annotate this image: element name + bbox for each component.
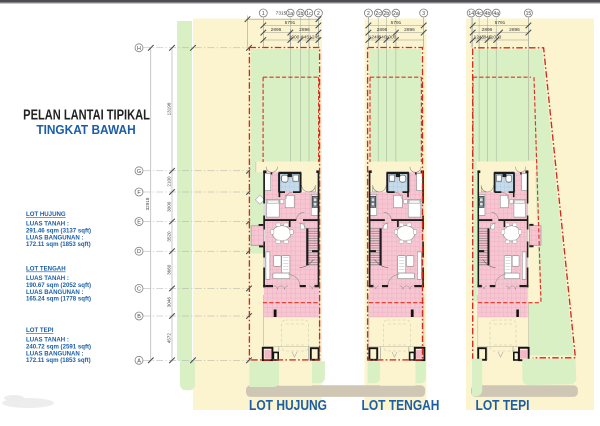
svg-text:1245: 1245 (309, 34, 320, 40)
svg-text:2896: 2896 (404, 27, 415, 33)
svg-text:C: C (137, 286, 141, 292)
svg-text:14: 14 (468, 11, 474, 17)
svg-text:3660: 3660 (166, 264, 171, 275)
svg-text:1b: 1b (298, 11, 304, 17)
svg-text:2b: 2b (384, 11, 390, 17)
svg-text:5791: 5791 (285, 20, 296, 26)
svg-text:LOT HUJUNG: LOT HUJUNG (249, 397, 327, 414)
svg-text:E: E (137, 220, 141, 226)
svg-text:2896: 2896 (271, 27, 282, 33)
svg-text:3520: 3520 (166, 231, 171, 242)
svg-text:2a: 2a (393, 11, 399, 17)
svg-text:2896: 2896 (377, 27, 388, 33)
svg-text:PELAN LANTAI TIPIKAL: PELAN LANTAI TIPIKAL (23, 106, 150, 123)
svg-text:4572: 4572 (166, 333, 171, 344)
svg-text:H: H (137, 46, 141, 52)
svg-text:1000: 1000 (289, 34, 300, 40)
svg-text:2: 2 (317, 11, 320, 17)
svg-text:LOT TENGAH: LOT TENGAH (362, 397, 440, 414)
svg-text:2: 2 (367, 11, 370, 17)
svg-text:2896: 2896 (299, 27, 310, 33)
svg-text:LOT TEPI: LOT TEPI (476, 397, 530, 414)
svg-text:TINGKAT BAWAH: TINGKAT BAWAH (36, 122, 135, 137)
svg-text:3046: 3046 (166, 297, 171, 308)
svg-text:1: 1 (262, 11, 265, 17)
svg-text:13198: 13198 (166, 102, 171, 115)
svg-text:4b: 4b (485, 11, 491, 17)
svg-text:1000: 1000 (491, 34, 502, 40)
svg-text:LOT TEPI: LOT TEPI (26, 327, 54, 334)
svg-text:1000: 1000 (386, 34, 397, 40)
svg-text:2100: 2100 (166, 176, 171, 187)
svg-text:G: G (137, 169, 141, 175)
svg-text:2c: 2c (376, 11, 382, 17)
svg-text:2896: 2896 (482, 27, 493, 33)
svg-text:4c: 4c (476, 11, 482, 17)
svg-text:LOT HUJUNG: LOT HUJUNG (26, 211, 66, 218)
svg-text:845: 845 (301, 34, 309, 40)
svg-text:172.11 sqm (1853 sqft): 172.11 sqm (1853 sqft) (26, 357, 91, 364)
svg-text:1a: 1a (287, 11, 293, 17)
svg-text:2896: 2896 (509, 27, 520, 33)
svg-text:5791: 5791 (495, 20, 506, 26)
svg-text:4a: 4a (493, 11, 499, 17)
svg-text:A: A (137, 358, 141, 364)
svg-text:15: 15 (526, 11, 532, 17)
svg-text:1c: 1c (306, 11, 312, 17)
svg-text:D: D (137, 249, 141, 255)
svg-text:LOT TENGAH: LOT TENGAH (26, 266, 66, 273)
svg-text:5791: 5791 (391, 20, 402, 26)
svg-text:3000: 3000 (166, 201, 171, 212)
svg-text:32918: 32918 (145, 197, 150, 210)
svg-text:7315: 7315 (276, 11, 287, 17)
svg-text:165.24 sqm (1778 sqft): 165.24 sqm (1778 sqft) (26, 296, 91, 303)
svg-text:3: 3 (422, 11, 425, 17)
svg-text:172.11 sqm (1853 sqft): 172.11 sqm (1853 sqft) (26, 241, 91, 248)
svg-text:B: B (137, 314, 141, 320)
